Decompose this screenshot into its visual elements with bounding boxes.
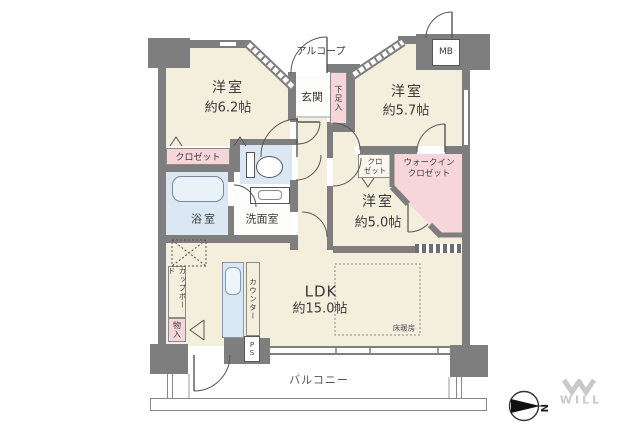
hall-door: [298, 122, 320, 144]
room2-wic-door: [417, 124, 445, 152]
room2-name: 洋室: [391, 84, 423, 100]
ldk-size: 約15.0帖: [293, 303, 348, 318]
balcony-door: [194, 355, 230, 391]
entrance-label: 玄関: [301, 92, 323, 105]
compass-north-label: N: [538, 404, 549, 412]
room1-name: 洋室: [212, 80, 244, 96]
room1-size: 約6.2帖: [205, 102, 252, 117]
wic-label-1: ウォークイン: [403, 159, 454, 169]
brand-label: WILL: [560, 395, 602, 408]
room2-nook-door: [333, 123, 360, 150]
toilet-door: [296, 155, 321, 180]
refrigerator-space: [172, 240, 206, 266]
floor-heating-label: 床暖房: [393, 325, 416, 334]
window-mullions: [336, 346, 438, 355]
brand-logo-icon: [564, 380, 594, 392]
room3-name: 洋室: [362, 194, 394, 210]
chamfer-window-room2: [352, 42, 403, 76]
chamfer-window-room1: [247, 43, 293, 87]
room2-size: 約5.7帖: [383, 105, 430, 120]
ldk-name: LDK: [305, 283, 338, 300]
bathroom-label: 浴室: [191, 214, 217, 227]
washroom-label: 洗面室: [246, 214, 279, 227]
compass: N: [510, 392, 550, 421]
room1-door: [261, 119, 297, 157]
room3-door: [333, 158, 361, 186]
balcony-label: バルコニー: [289, 375, 349, 388]
meter-box-label: MB: [439, 47, 453, 57]
room3-size: 約5.0帖: [355, 217, 402, 232]
neighbor-door: [426, 12, 452, 38]
bath-door: [234, 185, 256, 207]
floor-plan: クロゼット 下足入 クロ ゼット カップボード 物入 カウンター PS: [0, 0, 640, 427]
washroom-door: [302, 212, 327, 237]
wic-label-2: クロゼット: [408, 170, 451, 180]
plan-linework: N: [0, 0, 640, 427]
alcove-label: アルコープ: [296, 46, 345, 58]
